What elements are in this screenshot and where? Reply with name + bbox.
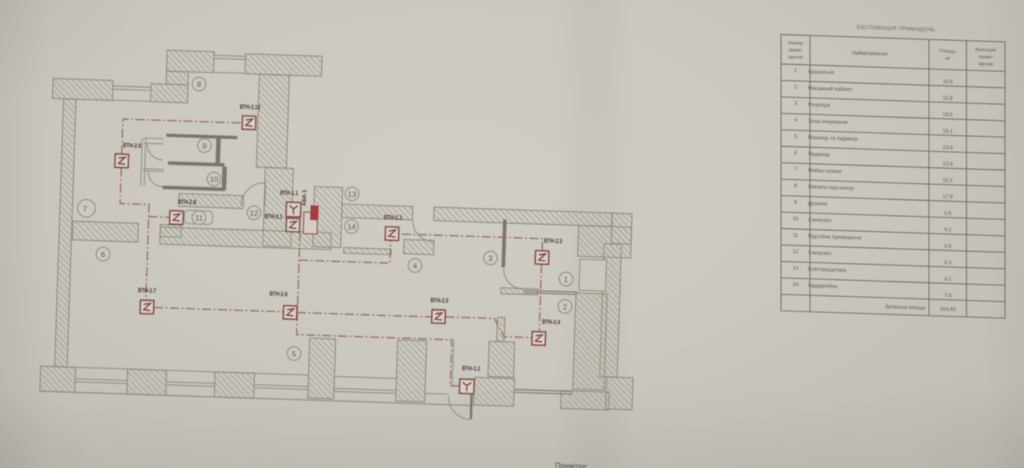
svg-text:13: 13 — [348, 190, 357, 199]
svg-text:14: 14 — [347, 222, 357, 231]
svg-text:Душова: Душова — [808, 201, 827, 208]
svg-text:ВТН-2.5: ВТН-2.5 — [430, 297, 449, 305]
svg-text:Загальна площа: Загальна площа — [885, 304, 925, 311]
svg-text:6,3: 6,3 — [944, 260, 951, 266]
svg-text:2: 2 — [794, 84, 797, 90]
svg-text:3: 3 — [794, 101, 797, 107]
svg-text:5,6: 5,6 — [944, 211, 951, 217]
svg-text:2: 2 — [563, 302, 568, 311]
svg-text:5: 5 — [292, 349, 297, 358]
svg-text:м²: м² — [945, 56, 950, 62]
svg-text:5,9: 5,9 — [944, 244, 951, 250]
svg-text:Рецепція: Рецепція — [808, 102, 830, 109]
svg-text:13,8: 13,8 — [943, 161, 953, 167]
svg-text:5: 5 — [794, 134, 797, 140]
svg-text:164,40: 164,40 — [940, 306, 956, 313]
svg-text:8: 8 — [794, 183, 797, 189]
svg-text:11: 11 — [793, 232, 798, 238]
svg-text:Манікюр та педикюр: Манікюр та педикюр — [808, 135, 858, 143]
svg-text:ВТН-1.1: ВТН-1.1 — [280, 190, 299, 198]
svg-text:1: 1 — [564, 275, 569, 284]
svg-text:ЕКСПЛІКАЦІЯ ПРИМІЩЕНЬ: ЕКСПЛІКАЦІЯ ПРИМІЩЕНЬ — [857, 25, 935, 34]
svg-text:1: 1 — [794, 68, 797, 74]
svg-text:16,1: 16,1 — [943, 128, 953, 134]
svg-text:ВТН-2.1: ВТН-2.1 — [264, 213, 283, 221]
svg-text:3: 3 — [488, 254, 493, 263]
svg-text:7: 7 — [794, 167, 797, 173]
svg-text:10,6: 10,6 — [943, 79, 953, 85]
svg-text:Найменування: Найменування — [852, 49, 888, 57]
svg-text:ВТН-2.10: ВТН-2.10 — [240, 104, 261, 112]
svg-text:щення: щення — [979, 62, 994, 67]
svg-text:12,8: 12,8 — [943, 95, 953, 101]
svg-text:23,9: 23,9 — [943, 145, 953, 151]
svg-text:10: 10 — [793, 216, 799, 222]
svg-text:12: 12 — [793, 249, 799, 255]
svg-text:12: 12 — [250, 209, 259, 218]
svg-text:примі-: примі- — [979, 54, 993, 60]
svg-text:8: 8 — [197, 80, 202, 89]
svg-text:18,5: 18,5 — [943, 112, 953, 118]
svg-text:15,1: 15,1 — [943, 178, 953, 184]
svg-text:Категорія: Категорія — [975, 47, 996, 54]
svg-text:13: 13 — [793, 265, 799, 271]
svg-text:ВТН-2.4: ВТН-2.4 — [542, 319, 561, 327]
svg-text:9: 9 — [794, 200, 797, 206]
svg-text:10: 10 — [210, 175, 219, 184]
svg-text:Підсобне приміщення: Підсобне приміщення — [808, 234, 861, 242]
svg-text:Педикюр: Педикюр — [808, 151, 830, 158]
svg-text:Зона очікування: Зона очікування — [808, 119, 847, 126]
svg-text:Масажний кабінет: Масажний кабінет — [808, 85, 853, 93]
svg-text:АБК-1: АБК-1 — [302, 189, 309, 206]
svg-text:9: 9 — [202, 141, 207, 150]
svg-text:Красильня: Красильня — [808, 69, 834, 76]
svg-text:Кімната персоналу: Кімната персоналу — [808, 184, 854, 192]
svg-text:Площа,: Площа, — [939, 48, 956, 55]
svg-text:ВТН-2.6: ВТН-2.6 — [269, 291, 288, 299]
svg-text:14: 14 — [793, 282, 799, 288]
svg-text:ВТН-2.9: ВТН-2.9 — [123, 142, 142, 150]
svg-text:17,8: 17,8 — [943, 194, 953, 200]
svg-text:ВТН-1.2: ВТН-1.2 — [462, 365, 481, 373]
svg-text:6: 6 — [101, 250, 106, 259]
svg-text:4,2: 4,2 — [944, 276, 951, 282]
svg-text:ВТН-2.2: ВТН-2.2 — [384, 214, 403, 222]
svg-text:Номер: Номер — [788, 40, 803, 46]
svg-text:Примітки:: Примітки: — [555, 461, 588, 468]
svg-text:7: 7 — [83, 204, 88, 213]
svg-text:Мийка голови: Мийка голови — [808, 167, 841, 175]
svg-text:ВТН-2.3: ВТН-2.3 — [544, 238, 563, 246]
svg-text:6,2: 6,2 — [944, 227, 951, 233]
svg-text:Санвузол: Санвузол — [808, 250, 831, 257]
svg-text:ВТН-2.7: ВТН-2.7 — [138, 287, 157, 295]
svg-text:4: 4 — [794, 117, 797, 123]
svg-text:Гардеробна: Гардеробна — [808, 283, 837, 290]
svg-text:щення: щення — [788, 55, 803, 60]
svg-text:11: 11 — [195, 213, 203, 222]
svg-text:7,8: 7,8 — [944, 293, 951, 299]
svg-text:примі-: примі- — [789, 47, 803, 53]
svg-text:Санвузол: Санвузол — [808, 217, 831, 224]
svg-text:ВТН-2.8: ВТН-2.8 — [178, 199, 197, 207]
svg-text:Електрощитова: Електрощитова — [808, 267, 846, 274]
svg-text:6: 6 — [794, 150, 797, 156]
